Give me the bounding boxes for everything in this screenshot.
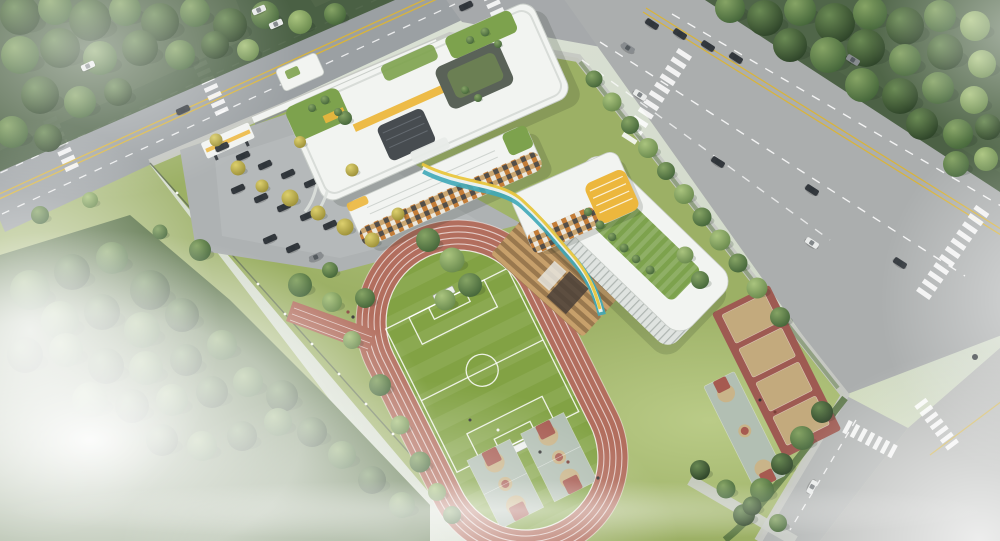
fog-top-left [0, 0, 300, 200]
scene-canvas [0, 0, 1000, 541]
fog-right [880, 120, 1000, 480]
fog-bottom-band [0, 480, 1000, 541]
campus-aerial-rendering [0, 0, 1000, 541]
fog-top-right [870, 0, 1000, 150]
